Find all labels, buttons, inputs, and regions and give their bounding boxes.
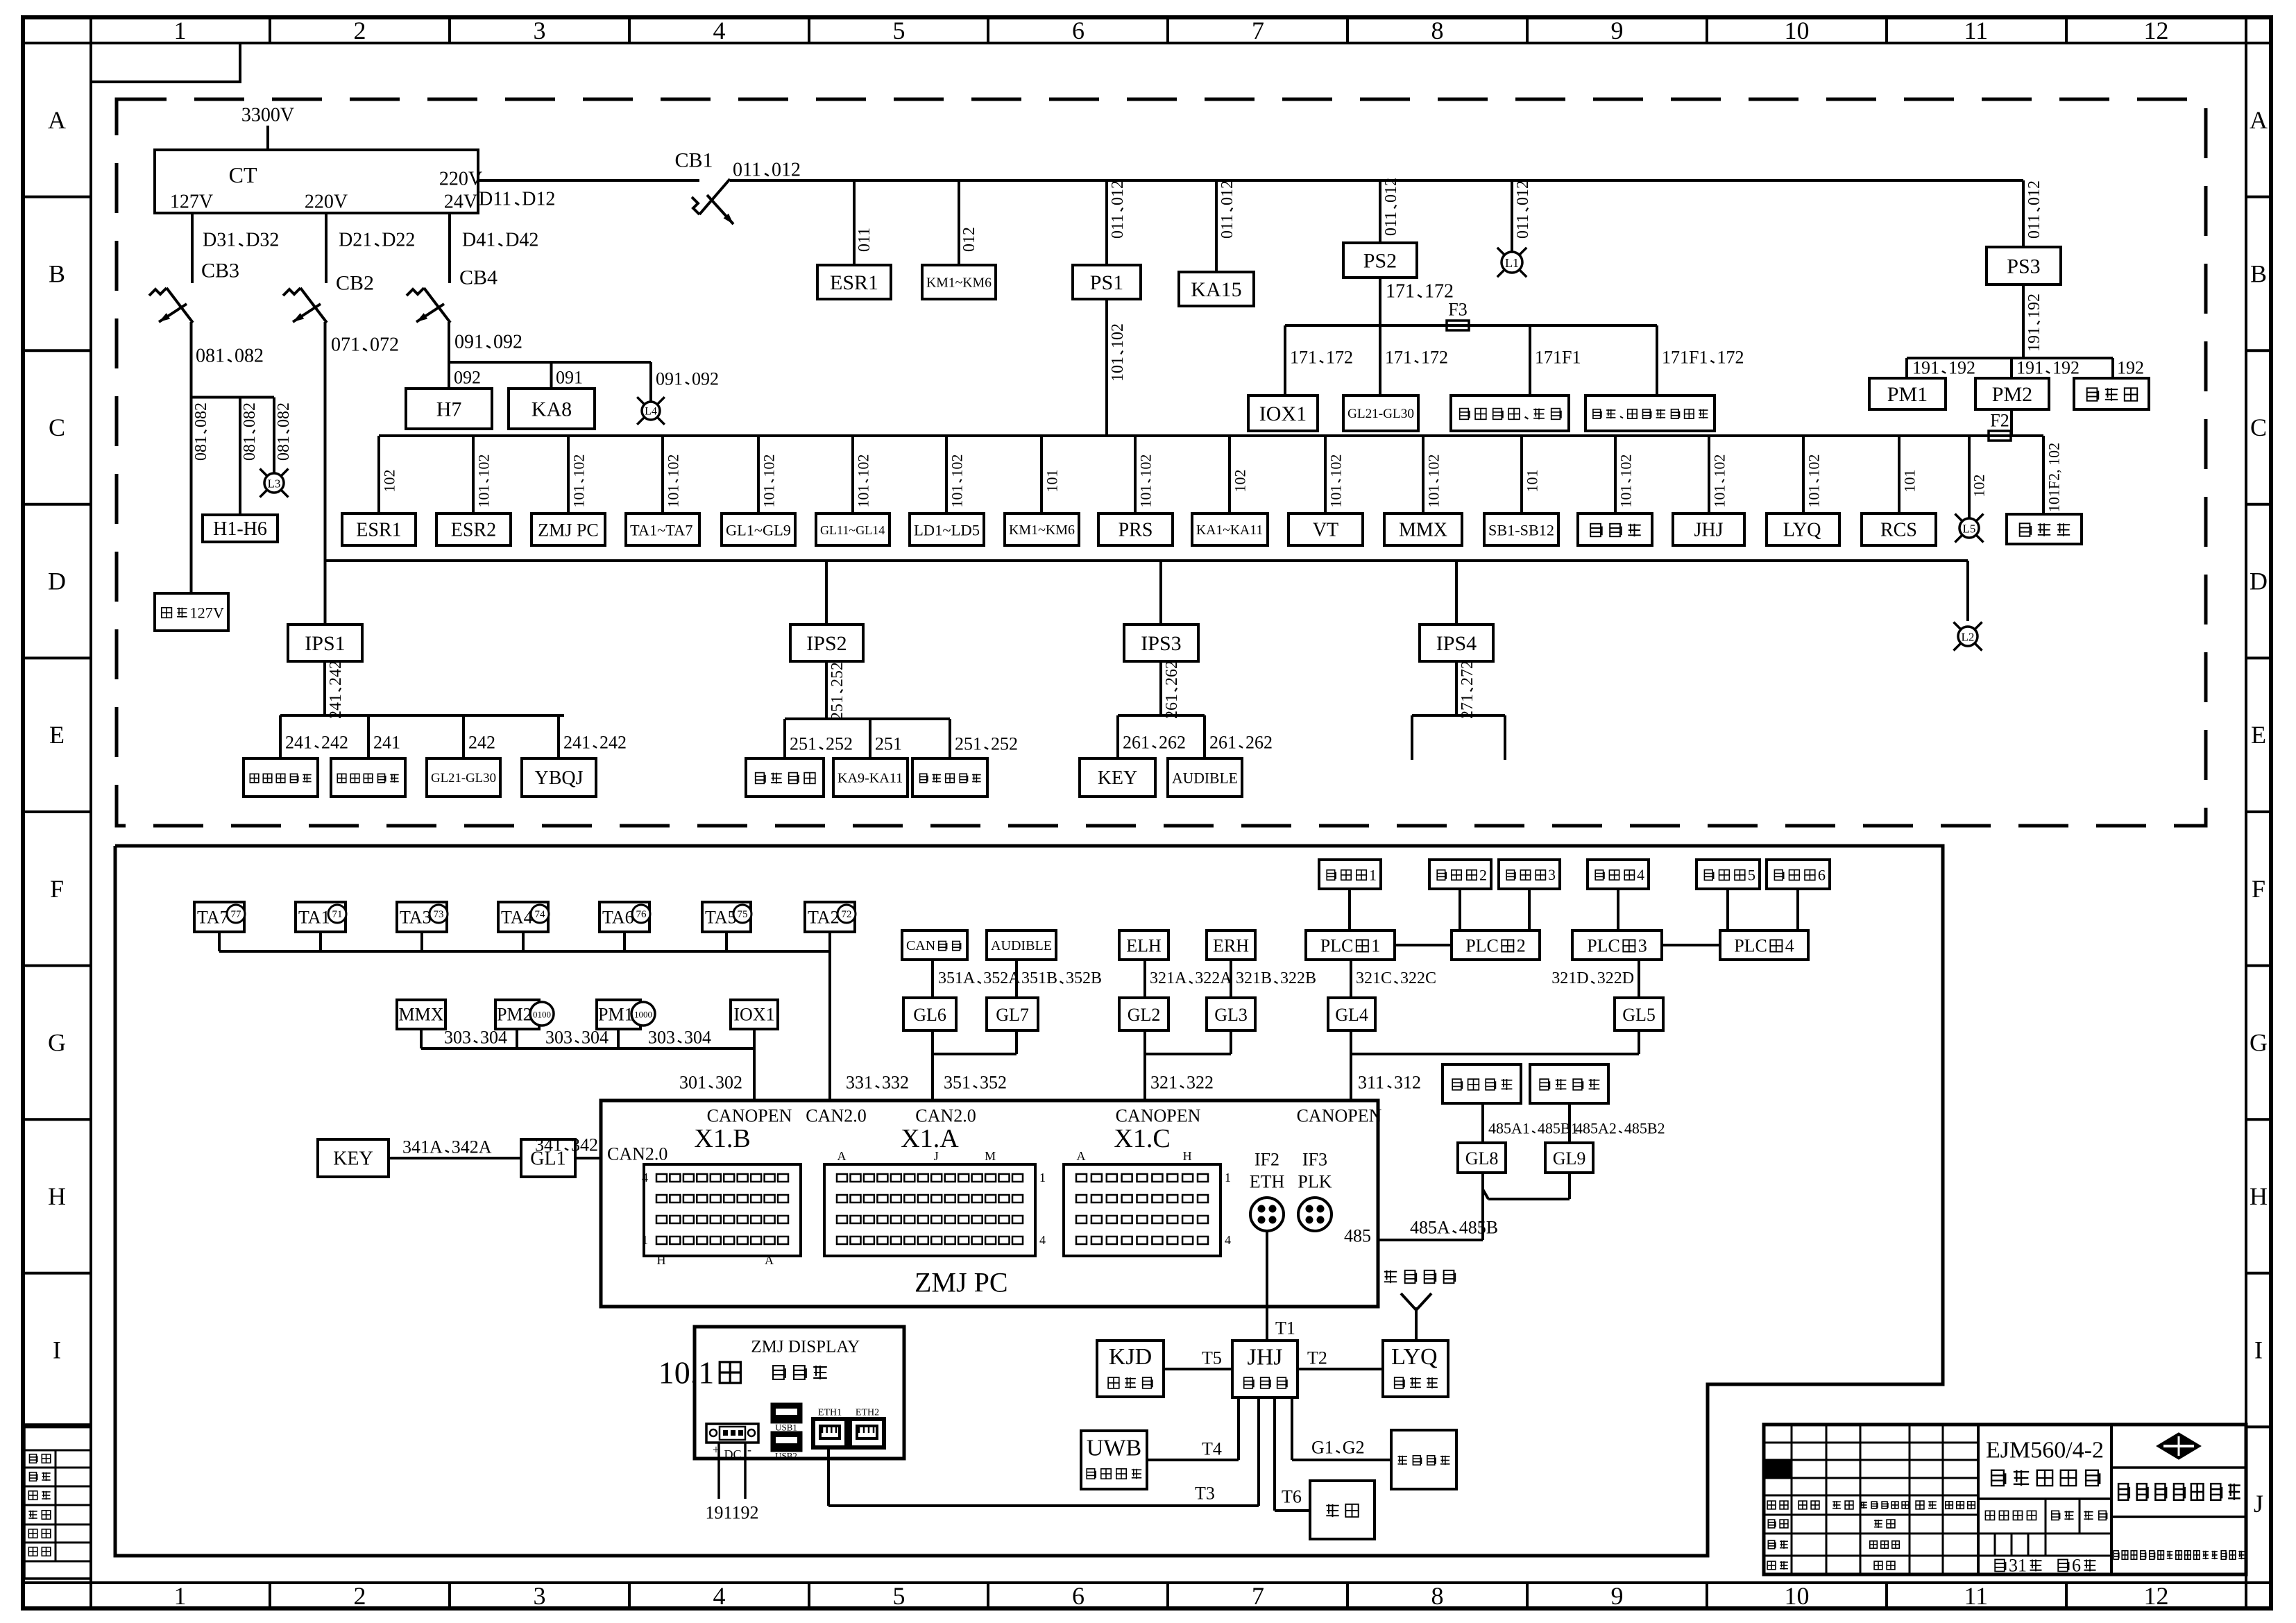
svg-text:GL8: GL8 — [1465, 1148, 1499, 1169]
svg-text:T5: T5 — [1202, 1348, 1222, 1368]
svg-text:IOX1: IOX1 — [1259, 402, 1307, 425]
svg-text:4: 4 — [713, 17, 726, 44]
svg-text:485: 485 — [1344, 1226, 1371, 1246]
svg-text:261: 261 — [1209, 733, 1236, 753]
svg-text:M: M — [985, 1149, 996, 1163]
svg-text:12: 12 — [2144, 1582, 2169, 1610]
svg-text:081: 081 — [196, 346, 225, 367]
svg-text:171: 171 — [1386, 281, 1415, 303]
svg-text:127V: 127V — [190, 604, 224, 622]
svg-text:322D: 322D — [1597, 969, 1634, 987]
svg-text:321B: 321B — [1236, 969, 1272, 987]
svg-text:102: 102 — [1327, 454, 1345, 477]
svg-text:PM1: PM1 — [598, 1005, 633, 1025]
svg-text:I: I — [53, 1336, 61, 1364]
svg-text:CB2: CB2 — [336, 272, 374, 295]
svg-text:MMX: MMX — [1399, 520, 1447, 541]
svg-text:76: 76 — [636, 909, 647, 920]
svg-text:GL5: GL5 — [1622, 1005, 1656, 1025]
svg-text:H: H — [657, 1253, 666, 1267]
svg-text:342: 342 — [571, 1135, 598, 1155]
svg-text:PLC: PLC — [1320, 936, 1354, 956]
svg-text:220V: 220V — [439, 169, 482, 190]
svg-text:TA1: TA1 — [298, 908, 330, 928]
svg-text:101: 101 — [1109, 357, 1127, 382]
svg-text:CAN2.0: CAN2.0 — [915, 1106, 976, 1126]
svg-text:9: 9 — [1611, 17, 1624, 44]
svg-text:322B: 322B — [1280, 969, 1316, 987]
svg-text:101: 101 — [475, 485, 493, 508]
svg-text:DC: DC — [724, 1447, 742, 1461]
svg-text:101: 101 — [760, 485, 778, 508]
svg-text:PRS: PRS — [1119, 520, 1153, 541]
svg-text:351B: 351B — [1021, 969, 1057, 987]
svg-text:102: 102 — [1711, 454, 1728, 477]
svg-text:10: 10 — [1785, 17, 1810, 44]
svg-text:102: 102 — [949, 454, 966, 477]
svg-text:322A: 322A — [1195, 969, 1232, 987]
svg-text:5: 5 — [893, 1582, 905, 1610]
svg-text:ETH1: ETH1 — [818, 1408, 842, 1418]
svg-text:341A: 341A — [402, 1137, 443, 1157]
svg-text:GL9: GL9 — [1553, 1148, 1586, 1169]
svg-text:171F1: 171F1 — [1662, 348, 1708, 368]
svg-text:F: F — [50, 875, 64, 903]
svg-text:251: 251 — [955, 734, 982, 754]
svg-text:TA2: TA2 — [808, 908, 840, 928]
svg-text:24V: 24V — [444, 192, 477, 213]
svg-text:191: 191 — [1912, 358, 1939, 378]
svg-text:8: 8 — [1431, 1582, 1444, 1610]
svg-text:GL4: GL4 — [1335, 1005, 1368, 1025]
svg-text:6: 6 — [1072, 17, 1085, 44]
svg-text:D21: D21 — [339, 230, 372, 251]
svg-text:012: 012 — [1218, 180, 1236, 205]
svg-text:485A: 485A — [1410, 1218, 1450, 1238]
svg-text:TA3: TA3 — [400, 908, 432, 928]
svg-text:6: 6 — [1072, 1582, 1085, 1610]
svg-text:321D: 321D — [1551, 969, 1588, 987]
svg-text:PLC: PLC — [1465, 936, 1499, 956]
svg-text:071: 071 — [331, 334, 360, 356]
svg-text:ESR2: ESR2 — [451, 520, 496, 541]
svg-text:322: 322 — [1187, 1073, 1214, 1093]
svg-text:072: 072 — [370, 334, 399, 356]
svg-text:ERH: ERH — [1213, 936, 1249, 956]
svg-text:331: 331 — [846, 1073, 873, 1093]
svg-text:77: 77 — [231, 909, 242, 920]
svg-text:B: B — [2250, 260, 2267, 287]
svg-text:C: C — [49, 414, 65, 441]
svg-text:L1: L1 — [1505, 256, 1519, 270]
svg-text:303: 303 — [444, 1028, 471, 1048]
svg-text:171F1: 171F1 — [1535, 348, 1581, 368]
svg-text:T6: T6 — [1282, 1487, 1302, 1507]
svg-text:127V: 127V — [170, 192, 213, 213]
svg-text:352B: 352B — [1066, 969, 1102, 987]
svg-text:1: 1 — [1369, 867, 1377, 884]
svg-text:321A: 321A — [1150, 969, 1187, 987]
svg-text:A: A — [2250, 106, 2268, 134]
svg-text:D12: D12 — [522, 189, 555, 210]
svg-text:T1: T1 — [1275, 1318, 1295, 1339]
svg-text:X1.C: X1.C — [1114, 1124, 1170, 1153]
svg-text:012: 012 — [2025, 180, 2043, 205]
svg-text:332: 332 — [882, 1073, 909, 1093]
svg-text:PS3: PS3 — [2007, 255, 2040, 278]
svg-text:ESR1: ESR1 — [830, 271, 878, 294]
svg-text:ESR1: ESR1 — [356, 520, 401, 541]
svg-text:192: 192 — [2052, 358, 2080, 378]
svg-text:IPS1: IPS1 — [305, 632, 345, 655]
svg-text:251: 251 — [790, 734, 817, 754]
svg-text:2: 2 — [354, 17, 366, 44]
svg-text:101F2, 102: 101F2, 102 — [2046, 443, 2063, 512]
svg-text:CAN: CAN — [906, 938, 935, 953]
svg-text:242: 242 — [327, 661, 345, 686]
svg-text:485A2: 485A2 — [1575, 1120, 1617, 1137]
svg-text:102: 102 — [855, 454, 872, 477]
svg-text:301: 301 — [679, 1073, 706, 1093]
svg-text:PM1: PM1 — [1887, 383, 1928, 406]
svg-text:082: 082 — [192, 402, 210, 427]
svg-text:KA9-KA11: KA9-KA11 — [837, 771, 903, 786]
svg-text:PLK: PLK — [1298, 1172, 1332, 1192]
svg-text:GL21-GL30: GL21-GL30 — [431, 771, 496, 785]
svg-text:12: 12 — [2144, 17, 2169, 44]
svg-text:102: 102 — [570, 454, 588, 477]
svg-text:I: I — [2254, 1336, 2263, 1364]
svg-text:8: 8 — [1431, 17, 1444, 44]
svg-text:D31: D31 — [203, 230, 236, 251]
svg-text:101: 101 — [665, 485, 682, 508]
svg-text:101: 101 — [1425, 485, 1443, 508]
svg-text:LD1~LD5: LD1~LD5 — [914, 522, 980, 539]
svg-text:AUDIBLE: AUDIBLE — [1172, 770, 1238, 787]
svg-text:312: 312 — [1394, 1073, 1421, 1093]
svg-text:10: 10 — [1785, 1582, 1810, 1610]
svg-text:4: 4 — [1637, 867, 1644, 883]
svg-text:252: 252 — [991, 734, 1018, 754]
svg-text:101: 101 — [1327, 485, 1345, 508]
svg-text:101: 101 — [570, 485, 588, 508]
svg-text:L4: L4 — [645, 406, 657, 418]
svg-text:7: 7 — [1252, 17, 1264, 44]
svg-text:3: 3 — [534, 17, 546, 44]
svg-text:AUDIBLE: AUDIBLE — [991, 938, 1052, 953]
svg-text:TA5: TA5 — [705, 908, 737, 928]
svg-text:T3: T3 — [1195, 1484, 1215, 1504]
svg-text:5: 5 — [893, 17, 905, 44]
svg-text:101: 101 — [1044, 470, 1061, 493]
svg-text:0100: 0100 — [533, 1010, 551, 1020]
svg-text:011: 011 — [856, 228, 874, 252]
svg-text:304: 304 — [581, 1028, 609, 1048]
svg-text:252: 252 — [826, 734, 853, 754]
svg-text:191: 191 — [2025, 327, 2043, 352]
svg-text:102: 102 — [381, 470, 398, 493]
svg-text:KM1~KM6: KM1~KM6 — [1009, 522, 1075, 538]
svg-text:262: 262 — [1159, 733, 1186, 753]
svg-text:251: 251 — [875, 734, 902, 754]
svg-text:J: J — [2254, 1490, 2263, 1518]
svg-text:012: 012 — [1109, 180, 1127, 205]
svg-text:JHJ: JHJ — [1248, 1345, 1283, 1370]
svg-text:171: 171 — [1385, 348, 1412, 368]
svg-text:SB1-SB12: SB1-SB12 — [1488, 522, 1554, 539]
svg-text:101: 101 — [1137, 485, 1155, 508]
svg-text:011: 011 — [1218, 214, 1236, 239]
svg-text:E: E — [49, 721, 65, 749]
svg-text:ETH: ETH — [1250, 1172, 1285, 1192]
svg-text:T4: T4 — [1202, 1439, 1222, 1459]
svg-text:102: 102 — [475, 454, 493, 477]
svg-text:F2: F2 — [1990, 411, 2009, 431]
svg-text:L3: L3 — [268, 477, 281, 491]
svg-text:JHJ: JHJ — [1694, 520, 1724, 541]
svg-text:IPS2: IPS2 — [806, 632, 847, 655]
svg-text:D22: D22 — [382, 230, 415, 251]
svg-text:485B2: 485B2 — [1624, 1120, 1665, 1137]
svg-text:75: 75 — [738, 909, 748, 920]
svg-text:102: 102 — [760, 454, 778, 477]
svg-text:A: A — [837, 1149, 847, 1163]
svg-text:D42: D42 — [505, 230, 538, 251]
svg-text:RCS: RCS — [1880, 520, 1917, 541]
svg-text:4: 4 — [1039, 1233, 1046, 1247]
svg-text:252: 252 — [828, 662, 847, 687]
svg-text:341: 341 — [535, 1135, 562, 1155]
svg-text:172: 172 — [1326, 348, 1353, 368]
svg-text:102: 102 — [1971, 475, 1988, 498]
svg-text:302: 302 — [715, 1073, 742, 1093]
svg-text:B: B — [49, 260, 65, 287]
svg-text:H: H — [48, 1182, 66, 1210]
svg-text:172: 172 — [1421, 348, 1448, 368]
svg-text:191: 191 — [706, 1503, 733, 1523]
svg-text:322C: 322C — [1400, 969, 1436, 987]
svg-text:192: 192 — [732, 1503, 759, 1523]
svg-text:171: 171 — [1290, 348, 1317, 368]
svg-text:4: 4 — [1785, 936, 1794, 956]
svg-text:TA1~TA7: TA1~TA7 — [630, 522, 692, 539]
svg-text:PM2: PM2 — [497, 1005, 532, 1025]
svg-text:10.1: 10.1 — [658, 1355, 715, 1391]
svg-text:GL11~GL14: GL11~GL14 — [820, 523, 885, 537]
svg-text:PS1: PS1 — [1090, 271, 1123, 294]
svg-text:CAN2.0: CAN2.0 — [806, 1106, 866, 1126]
svg-text:PLC: PLC — [1734, 936, 1767, 956]
svg-text:IOX1: IOX1 — [733, 1005, 774, 1025]
svg-text:H: H — [1183, 1149, 1192, 1163]
svg-text:091: 091 — [454, 332, 484, 353]
svg-text:321: 321 — [1150, 1073, 1177, 1093]
svg-text:101: 101 — [1524, 470, 1541, 493]
svg-text:1000: 1000 — [634, 1010, 652, 1020]
svg-text:241: 241 — [563, 733, 590, 753]
svg-text:081: 081 — [275, 436, 293, 461]
svg-text:011: 011 — [733, 160, 761, 181]
svg-text:1: 1 — [1225, 1171, 1231, 1184]
svg-text:H7: H7 — [436, 398, 462, 421]
svg-text:KM1~KM6: KM1~KM6 — [926, 275, 992, 291]
svg-text:TA4: TA4 — [501, 908, 533, 928]
svg-text:272: 272 — [1459, 661, 1477, 686]
svg-text:L2: L2 — [1962, 631, 1975, 644]
svg-text:6: 6 — [2072, 1556, 2081, 1576]
svg-text:102: 102 — [1137, 454, 1155, 477]
svg-text:241: 241 — [285, 733, 312, 753]
svg-text:CB3: CB3 — [201, 260, 239, 282]
svg-text:GL6: GL6 — [913, 1005, 946, 1025]
svg-text:3: 3 — [1548, 867, 1556, 883]
svg-text:102: 102 — [1617, 454, 1635, 477]
svg-text:4: 4 — [713, 1582, 726, 1610]
svg-text:3: 3 — [1638, 936, 1647, 956]
svg-text:102: 102 — [1232, 470, 1249, 493]
svg-text:220V: 220V — [305, 192, 348, 213]
svg-text:GL7: GL7 — [996, 1005, 1029, 1025]
svg-text:ELH: ELH — [1126, 936, 1162, 956]
svg-text:CANOPEN: CANOPEN — [1116, 1106, 1201, 1126]
svg-text:D: D — [2250, 568, 2268, 595]
svg-text:CAN2.0: CAN2.0 — [607, 1144, 667, 1164]
svg-text:3: 3 — [534, 1582, 546, 1610]
svg-text:ZMJ PC: ZMJ PC — [915, 1267, 1008, 1298]
svg-text:2: 2 — [1517, 936, 1526, 956]
svg-text:101: 101 — [949, 485, 966, 508]
svg-text:CB1: CB1 — [675, 149, 713, 172]
svg-text:H1-H6: H1-H6 — [213, 518, 267, 540]
svg-text:GL2: GL2 — [1128, 1005, 1161, 1025]
svg-text:D32: D32 — [246, 230, 279, 251]
svg-text:T2: T2 — [1307, 1348, 1327, 1368]
svg-text:IPS3: IPS3 — [1141, 632, 1181, 655]
svg-text:X1.A: X1.A — [901, 1124, 959, 1153]
svg-text:G1: G1 — [1311, 1438, 1334, 1458]
svg-text:242: 242 — [468, 733, 495, 753]
svg-text:KA8: KA8 — [532, 398, 572, 421]
svg-text:PLC: PLC — [1587, 936, 1620, 956]
svg-text:L5: L5 — [1963, 522, 1976, 536]
svg-text:IF2: IF2 — [1255, 1150, 1279, 1170]
svg-text:303: 303 — [648, 1028, 675, 1048]
svg-text:242: 242 — [599, 733, 627, 753]
svg-text:G2: G2 — [1343, 1438, 1365, 1458]
svg-text:251: 251 — [828, 695, 847, 720]
svg-text:CT: CT — [229, 162, 257, 187]
svg-text:KEY: KEY — [333, 1148, 373, 1170]
svg-text:082: 082 — [235, 346, 264, 367]
svg-text:PS2: PS2 — [1363, 250, 1397, 273]
svg-text:081: 081 — [241, 436, 259, 461]
svg-text:D11: D11 — [479, 189, 511, 210]
svg-text:MMX: MMX — [399, 1005, 444, 1025]
svg-text:351A: 351A — [938, 969, 976, 987]
svg-text:-: - — [747, 1443, 751, 1456]
svg-text:012: 012 — [960, 227, 978, 252]
svg-text:KEY: KEY — [1098, 767, 1138, 789]
svg-text:091: 091 — [556, 368, 583, 388]
svg-text:192: 192 — [1948, 358, 1975, 378]
svg-text:485B: 485B — [1459, 1218, 1498, 1238]
svg-text:G: G — [48, 1028, 66, 1056]
svg-text:31: 31 — [2009, 1556, 2027, 1576]
svg-text:D: D — [48, 568, 66, 595]
svg-text:CB4: CB4 — [459, 266, 498, 289]
svg-text:304: 304 — [480, 1028, 507, 1048]
svg-text:311: 311 — [1358, 1073, 1384, 1093]
svg-text:011: 011 — [1109, 214, 1127, 239]
svg-text:73: 73 — [434, 909, 444, 920]
svg-text:F3: F3 — [1448, 300, 1467, 320]
svg-text:GL1~GL9: GL1~GL9 — [726, 522, 791, 539]
svg-text:IF3: IF3 — [1302, 1150, 1327, 1170]
svg-text:091: 091 — [656, 369, 683, 389]
svg-text:C: C — [2250, 414, 2267, 441]
svg-text:082: 082 — [241, 402, 259, 427]
svg-text:A: A — [1077, 1149, 1086, 1163]
svg-text:321C: 321C — [1356, 969, 1392, 987]
svg-text:011: 011 — [1382, 212, 1400, 236]
svg-text:101: 101 — [1711, 485, 1728, 508]
svg-text:101: 101 — [1805, 485, 1823, 508]
svg-text:351: 351 — [944, 1073, 971, 1093]
svg-text:262: 262 — [1245, 733, 1273, 753]
svg-text:ZMJ DISPLAY: ZMJ DISPLAY — [751, 1338, 860, 1357]
svg-text:E: E — [2251, 721, 2266, 749]
svg-text:102: 102 — [1805, 454, 1823, 477]
svg-text:082: 082 — [275, 402, 293, 427]
svg-text:485B1: 485B1 — [1538, 1120, 1579, 1137]
svg-text:3300V: 3300V — [241, 105, 294, 126]
svg-text:092: 092 — [454, 368, 481, 388]
svg-text:71: 71 — [332, 909, 343, 920]
svg-text:74: 74 — [535, 909, 546, 920]
svg-text:11: 11 — [1964, 17, 1989, 44]
svg-text:KA15: KA15 — [1191, 278, 1241, 301]
svg-text:IPS4: IPS4 — [1436, 632, 1477, 655]
svg-text:USB1: USB1 — [775, 1422, 797, 1433]
svg-text:012: 012 — [1382, 178, 1400, 203]
svg-text:GL21-GL30: GL21-GL30 — [1347, 407, 1414, 421]
svg-text:CANOPEN: CANOPEN — [1297, 1106, 1382, 1126]
svg-text:X1.B: X1.B — [694, 1124, 750, 1153]
svg-text:KA1~KA11: KA1~KA11 — [1196, 522, 1263, 538]
svg-text:102: 102 — [1109, 323, 1127, 348]
svg-text:GL3: GL3 — [1214, 1005, 1248, 1025]
svg-text:EJM560/4-2: EJM560/4-2 — [1986, 1438, 2104, 1463]
svg-text:A: A — [765, 1253, 774, 1267]
svg-text:101: 101 — [1617, 485, 1635, 508]
svg-text:KJD: KJD — [1109, 1344, 1152, 1370]
svg-text:H: H — [2250, 1182, 2268, 1210]
svg-text:011: 011 — [1514, 214, 1532, 239]
svg-text:ETH2: ETH2 — [856, 1408, 879, 1418]
svg-text:UWB: UWB — [1087, 1436, 1141, 1461]
svg-text:1: 1 — [642, 1233, 648, 1247]
svg-text:1: 1 — [174, 1582, 187, 1610]
svg-text:VT: VT — [1313, 520, 1338, 541]
svg-text:262: 262 — [1163, 661, 1181, 686]
svg-text:1: 1 — [174, 17, 187, 44]
svg-text:USB2: USB2 — [775, 1451, 797, 1461]
svg-text:03: 03 — [1771, 1463, 1784, 1477]
svg-text:1: 1 — [1371, 936, 1380, 956]
svg-text:2: 2 — [354, 1582, 366, 1610]
svg-text:4: 4 — [642, 1171, 648, 1184]
svg-text:192: 192 — [2117, 358, 2144, 378]
